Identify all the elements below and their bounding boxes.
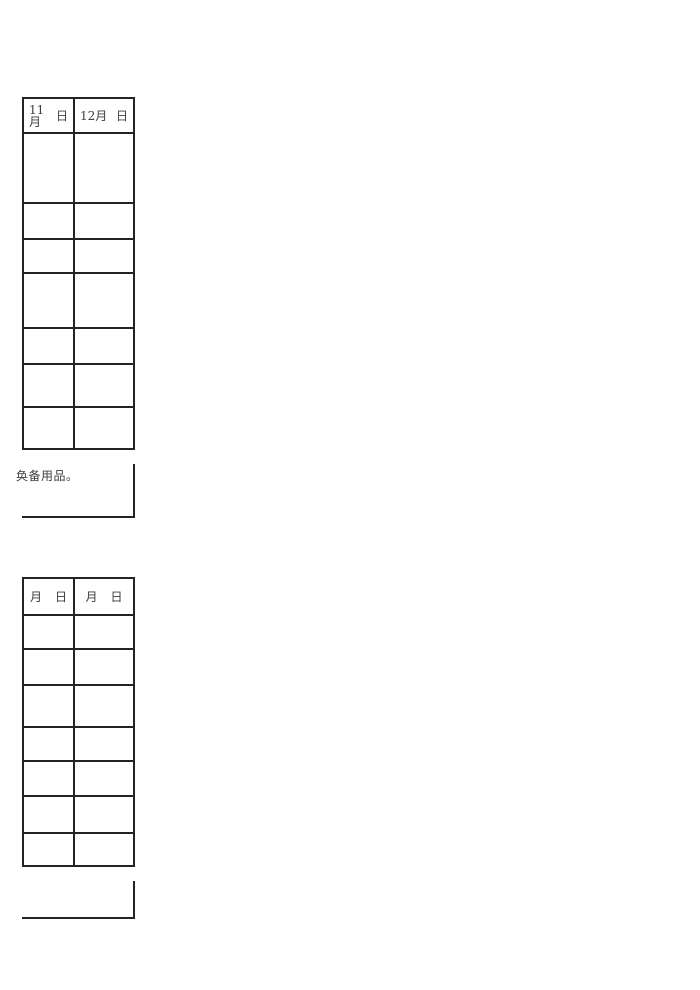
table-row (23, 649, 134, 685)
empty-cell (74, 203, 134, 239)
date-table-blank: 月 日 月 日 (22, 577, 135, 867)
table-row (23, 239, 134, 273)
empty-cell (74, 649, 134, 685)
day-label: 日 (56, 110, 68, 122)
empty-cell (23, 761, 74, 796)
empty-cell (23, 133, 74, 203)
table-row (23, 364, 134, 407)
empty-cell (74, 796, 134, 833)
table-row (23, 203, 134, 239)
header-cell-nov: 11月 日 (23, 98, 74, 133)
table-row (23, 273, 134, 328)
empty-cell (74, 364, 134, 407)
empty-cell (23, 649, 74, 685)
empty-cell (23, 273, 74, 328)
header-row: 月 日 月 日 (23, 578, 134, 615)
date-table-nov-dec: 11月 日 12月 日 (22, 97, 135, 450)
month-label: 月 (85, 591, 97, 603)
empty-cell (74, 328, 134, 364)
table-row (23, 615, 134, 649)
day-label: 日 (111, 591, 123, 603)
header-row: 11月 日 12月 日 (23, 98, 134, 133)
table-row (23, 328, 134, 364)
table-row (23, 833, 134, 866)
empty-cell (74, 833, 134, 866)
empty-cell (74, 133, 134, 203)
month-label: 12月 (80, 110, 107, 122)
header-cell-month-day: 月 日 (74, 578, 134, 615)
table-row (23, 407, 134, 449)
empty-cell (23, 328, 74, 364)
header-cell-dec: 12月 日 (74, 98, 134, 133)
table-row (23, 133, 134, 203)
empty-cell (74, 273, 134, 328)
empty-cell (23, 407, 74, 449)
day-label: 日 (55, 591, 67, 603)
empty-cell (23, 364, 74, 407)
empty-cell (23, 239, 74, 273)
empty-cell (23, 685, 74, 727)
empty-cell (23, 727, 74, 761)
day-label: 日 (116, 110, 128, 122)
empty-cell (74, 615, 134, 649)
empty-cell (23, 203, 74, 239)
empty-cell (74, 685, 134, 727)
month-label: 11月 (29, 104, 56, 128)
empty-cell (74, 727, 134, 761)
note-text: 奂备用品。 (16, 467, 79, 484)
table-row (23, 685, 134, 727)
empty-cell (74, 761, 134, 796)
month-label: 月 (30, 591, 42, 603)
empty-cell (23, 796, 74, 833)
empty-cell (74, 239, 134, 273)
trailing-region (22, 881, 135, 919)
empty-cell (74, 407, 134, 449)
empty-cell (23, 615, 74, 649)
header-cell-month-day: 月 日 (23, 578, 74, 615)
table-row (23, 727, 134, 761)
table-row (23, 796, 134, 833)
table-row (23, 761, 134, 796)
empty-cell (23, 833, 74, 866)
